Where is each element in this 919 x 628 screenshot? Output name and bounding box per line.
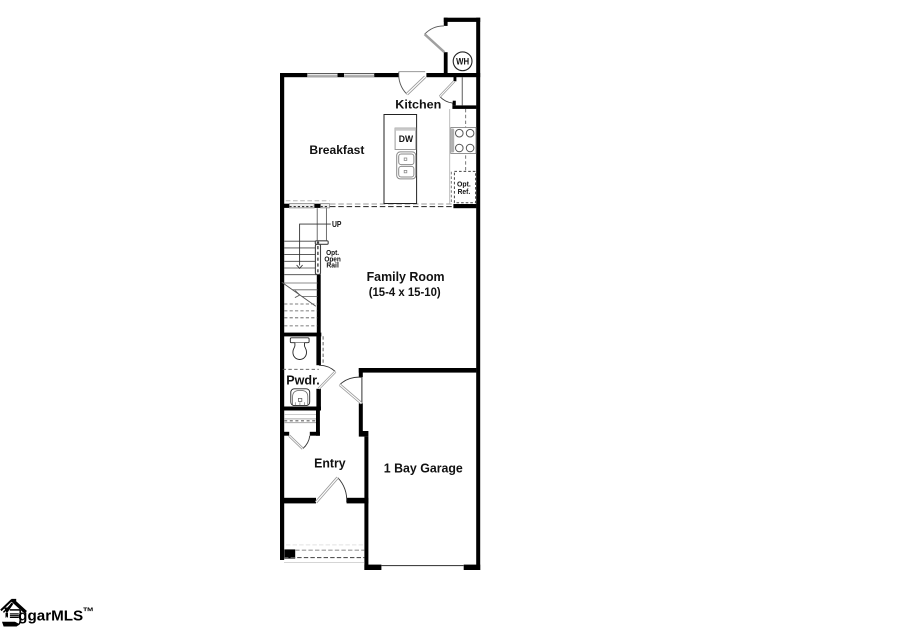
svg-text:™: ™ [83,607,95,619]
svg-text:WH: WH [456,57,469,67]
svg-text:Rail: Rail [326,261,339,270]
svg-text:1 Bay Garage: 1 Bay Garage [384,461,463,476]
svg-text:Family Room: Family Room [367,269,445,284]
svg-text:(15-4 x 15-10): (15-4 x 15-10) [369,285,441,299]
svg-text:Ref.: Ref. [458,187,471,196]
svg-text:ggarMLS: ggarMLS [18,608,83,625]
svg-text:Pwdr.: Pwdr. [286,373,320,387]
svg-text:UP: UP [332,220,342,229]
svg-text:Breakfast: Breakfast [309,143,364,157]
svg-text:Entry: Entry [314,456,346,471]
svg-text:DW: DW [399,134,414,144]
svg-text:Kitchen: Kitchen [395,98,441,112]
